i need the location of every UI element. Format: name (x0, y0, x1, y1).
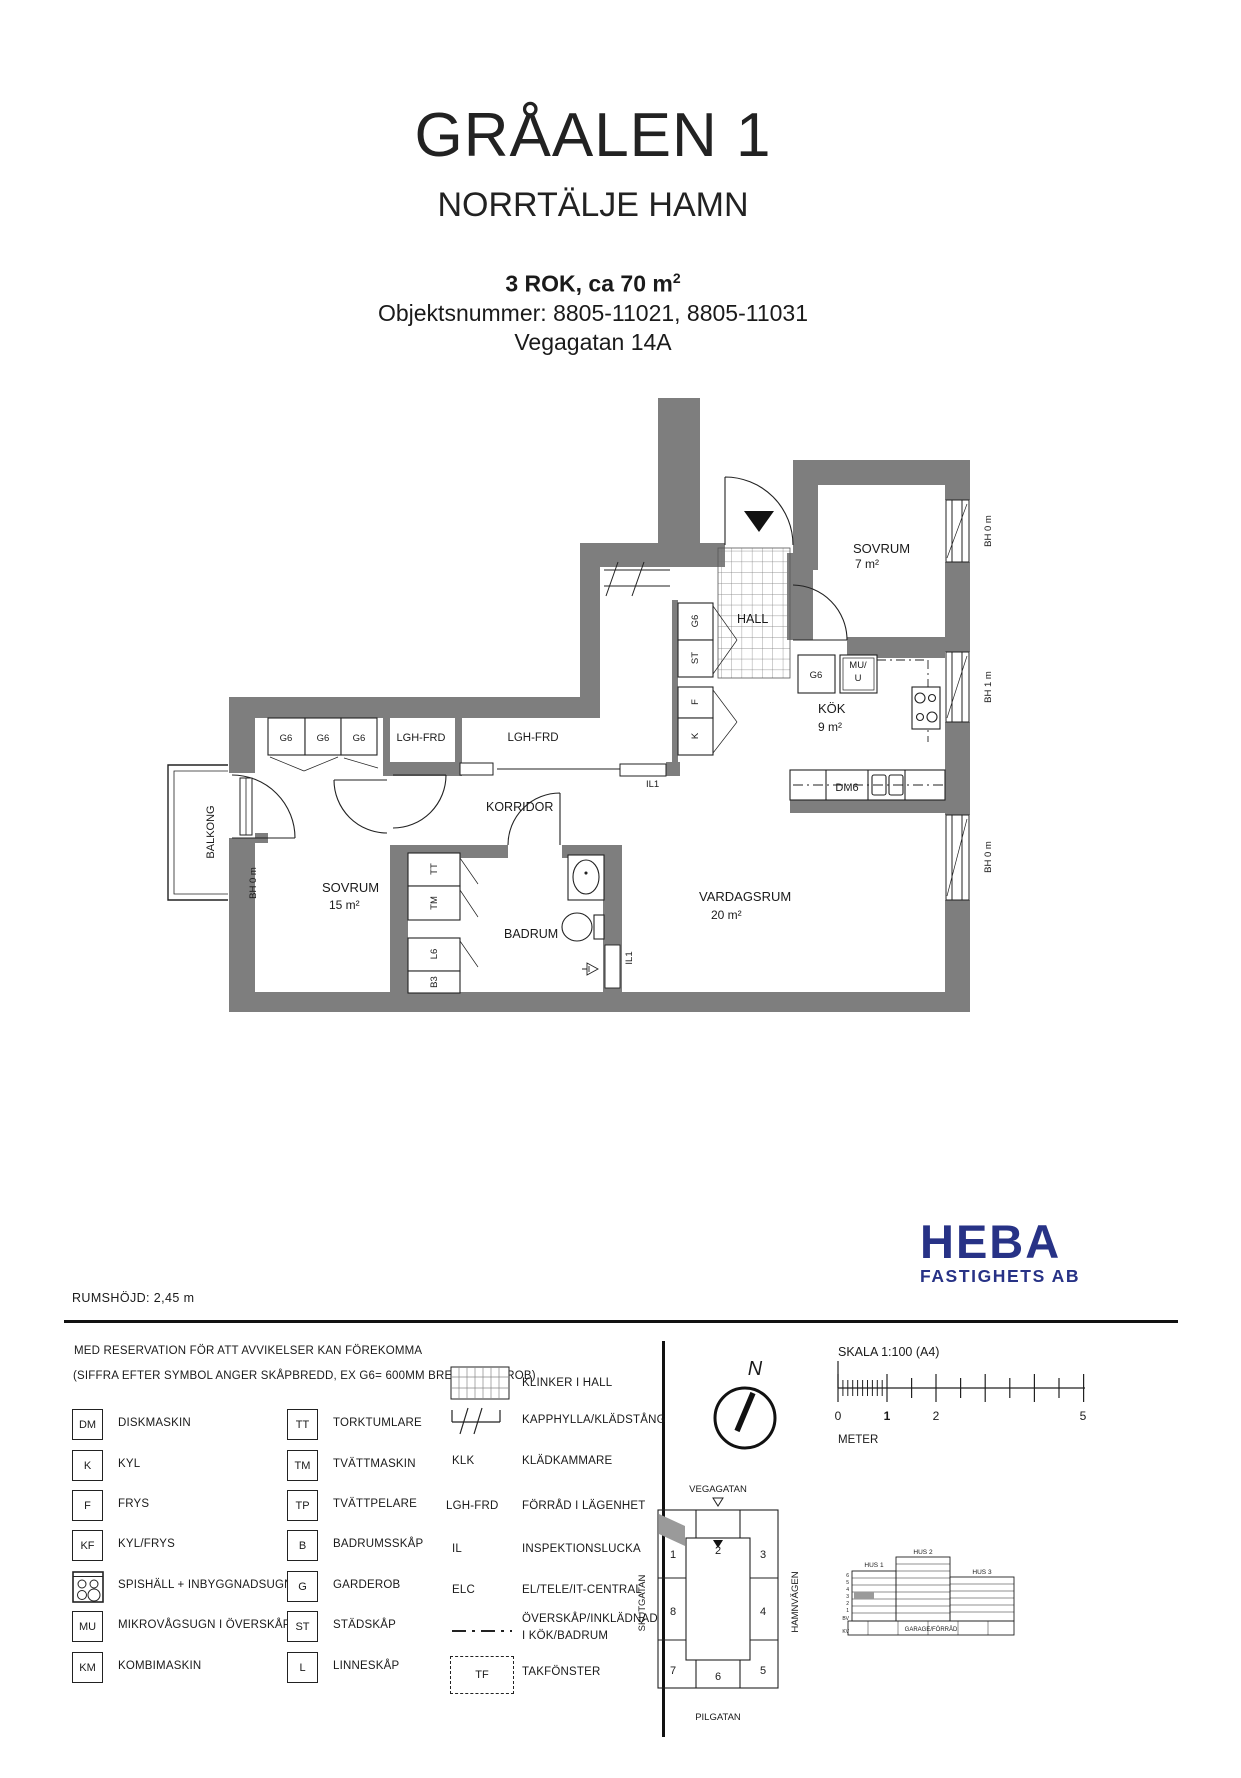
legend-tf-icon: TF (450, 1656, 514, 1694)
legend-symbol-f: F (72, 1490, 103, 1521)
legend-dashdot-icon (450, 1624, 514, 1638)
scale-unit-label: METER (838, 1434, 878, 1446)
badrum-fixtures (562, 855, 604, 975)
legend-label-stadskap: STÄDSKÅP (333, 1619, 396, 1631)
legend-symbol-k: K (72, 1450, 103, 1481)
legend-symbol-tm: TM (287, 1450, 318, 1481)
label-lghfrd-1: LGH-FRD (397, 732, 446, 744)
unit-number-2: 2 (715, 1545, 721, 1557)
legend-label-torktumlare: TORKTUMLARE (333, 1417, 422, 1429)
windows (946, 500, 969, 900)
scale-tick-0: 0 (835, 1409, 842, 1423)
street-label-pilgatan: PILGATAN (695, 1712, 741, 1723)
legend-symbol-b: B (287, 1530, 318, 1561)
svg-text:2: 2 (846, 1601, 849, 1607)
legend-label-tvattmaskin: TVÄTTMASKIN (333, 1458, 416, 1470)
legend-label-kombimaskin: KOMBIMASKIN (118, 1660, 201, 1672)
svg-text:KV: KV (842, 1629, 849, 1635)
area-label-sovrum15: 15 m² (329, 898, 360, 912)
room-label-balkong: BALKONG (205, 805, 217, 858)
label-il1-b: IL1 (624, 951, 635, 964)
label-bh0-right2: BH 0 m (983, 841, 994, 873)
floor-numbers: 6 5 4 3 2 1 BV KV (842, 1573, 849, 1635)
label-b3: B3 (429, 976, 440, 988)
inspection-hatch (620, 764, 666, 776)
window-sovrum7 (946, 500, 969, 562)
scale-bar: SKALA 1:100 (A4) 0 1 2 5 METER (830, 1340, 1102, 1455)
legend-kapphylla-icon (450, 1406, 502, 1436)
label-bh1: BH 1 m (983, 671, 994, 703)
label-f: F (690, 699, 701, 705)
area-label-vardagsrum: 20 m² (711, 908, 742, 922)
sqm-superscript: 2 (673, 270, 681, 286)
heba-logo: HEBA FASTIGHETS AB (920, 1218, 1080, 1286)
logo-text: HEBA (920, 1218, 1080, 1265)
svg-text:4: 4 (846, 1587, 849, 1593)
svg-text:5: 5 (846, 1580, 849, 1586)
legend-symbol-elc: ELC (452, 1584, 475, 1596)
logo-subtext: FASTIGHETS AB (920, 1268, 1080, 1286)
label-g6-1: G6 (280, 733, 293, 744)
legend-label-tvattpelare: TVÄTTPELARE (333, 1498, 417, 1510)
room-label-korridor: KORRIDOR (486, 800, 553, 814)
legend-symbol-il: IL (452, 1543, 462, 1555)
legend-klinker-icon (450, 1366, 510, 1400)
label-bh0-left: BH 0 m (248, 867, 259, 899)
legend-symbol-lghfrd: LGH-FRD (446, 1500, 499, 1512)
unit-number-4: 4 (760, 1606, 766, 1618)
street-label-skutgatan: SKUTGATAN (637, 1575, 648, 1632)
legend-symbol-tp: TP (287, 1490, 318, 1521)
label-l6: L6 (429, 949, 440, 960)
legend-label-inspektionslucka: INSPEKTIONSLUCKA (522, 1543, 641, 1555)
label-mu-2: U (855, 673, 862, 684)
legend-label-linneskap: LINNESKÅP (333, 1660, 399, 1672)
legend-label-diskmaskin: DISKMASKIN (118, 1417, 191, 1429)
entrance-arrow-icon (744, 511, 774, 532)
lghfrd-door-arc (393, 775, 446, 828)
svg-text:1: 1 (846, 1608, 849, 1614)
floorplan-drawing: SOVRUM 7 m² KÖK 9 m² HALL KORRIDOR BADRU… (160, 392, 1010, 1027)
kitchen-counter (790, 770, 945, 800)
room-label-vardagsrum: VARDAGSRUM (699, 889, 791, 904)
north-label: N (748, 1358, 763, 1380)
unit-number-3: 3 (760, 1549, 766, 1561)
room-label-sovrum15: SOVRUM (322, 880, 379, 895)
balcony-railing (168, 765, 228, 900)
unit-number-5: 5 (760, 1665, 766, 1677)
legend-label-eltele: EL/TELE/IT-CENTRAL (522, 1584, 642, 1596)
scale-label: SKALA 1:100 (A4) (838, 1345, 939, 1359)
legend-label-kapphylla: KAPPHYLLA/KLÄDSTÅNG (522, 1414, 666, 1426)
hus2-label: HUS 2 (913, 1549, 933, 1556)
unit-location-highlight (659, 1514, 685, 1546)
site-unit-numbers: 1 2 3 8 4 7 6 5 (670, 1545, 766, 1683)
legend-label-frys: FRYS (118, 1498, 149, 1510)
scale-tick-2: 2 (933, 1409, 940, 1423)
legend-symbol-kf: KF (72, 1530, 103, 1561)
document-page: GRÅALEN 1 NORRTÄLJE HAMN 3 ROK, ca 70 m2… (0, 0, 1241, 1778)
site-map: VEGAGATAN 1 2 3 8 4 7 6 5 SKUTGATAN HAMN… (628, 1478, 808, 1728)
garage-label: GARAGE/FÖRRÅD (905, 1626, 958, 1633)
label-mu-1: MU/ (849, 660, 867, 671)
sovrum15-wardrobes (268, 718, 378, 771)
page-subtitle: NORRTÄLJE HAMN (0, 186, 1186, 225)
room-height-note: RUMSHÖJD: 2,45 m (72, 1291, 194, 1305)
legend-symbol-km: KM (72, 1652, 103, 1683)
label-k: K (690, 732, 701, 739)
stove-icon (912, 687, 940, 729)
legend-label-takfonster: TAKFÖNSTER (522, 1666, 600, 1678)
legend-label-kyl: KYL (118, 1458, 140, 1470)
window-kok (946, 652, 969, 722)
page-title: GRÅALEN 1 (0, 100, 1186, 171)
toilet-icon (562, 913, 604, 941)
legend-note-1: MED RESERVATION FÖR ATT AVVIKELSER KAN F… (74, 1345, 422, 1357)
label-g6-2: G6 (317, 733, 330, 744)
hus3-label: HUS 3 (972, 1569, 992, 1576)
label-il1-a: IL1 (646, 779, 659, 790)
scale-tick-5: 5 (1080, 1409, 1087, 1423)
kapphylla-icon (604, 562, 670, 596)
legend-stove-icon (72, 1571, 104, 1603)
unit-number-1: 1 (670, 1549, 676, 1561)
label-st: ST (690, 652, 701, 664)
room-label-sovrum7: SOVRUM (853, 541, 910, 556)
room-label-badrum: BADRUM (504, 927, 558, 941)
hus1-label: HUS 1 (864, 1562, 884, 1569)
label-g6-3: G6 (353, 733, 366, 744)
sovrum15-door-arc (334, 780, 387, 833)
apartment-size-line: 3 ROK, ca 70 m2 (0, 270, 1186, 298)
label-tm: TM (429, 896, 440, 910)
svg-text:6: 6 (846, 1573, 849, 1579)
street-marker-icon (713, 1498, 723, 1506)
legend-label-forrad: FÖRRÅD I LÄGENHET (522, 1500, 646, 1512)
badrum-cabinets (408, 853, 478, 993)
label-lghfrd-2: LGH-FRD (507, 732, 558, 744)
unit-number-8: 8 (670, 1606, 676, 1618)
room-label-kok: KÖK (818, 701, 846, 716)
elevation-unit-highlight (854, 1592, 874, 1599)
address-line: Vegagatan 14A (0, 329, 1186, 356)
legend-label-garderob: GARDEROB (333, 1579, 400, 1591)
compass-icon: N (700, 1350, 795, 1465)
label-dm6: DM6 (835, 782, 858, 794)
area-label-sovrum7: 7 m² (855, 557, 879, 571)
lghfrd2-door (460, 763, 493, 775)
unit-number-6: 6 (715, 1671, 721, 1683)
unit-number-7: 7 (670, 1665, 676, 1677)
label-g6-hall: G6 (690, 615, 701, 628)
legend-symbol-dm: DM (72, 1409, 103, 1440)
washbasin-icon (568, 855, 604, 900)
area-label-kok: 9 m² (818, 720, 842, 734)
legend-symbol-l: L (287, 1652, 318, 1683)
legend-label-mikro: MIKROVÅGSUGN I ÖVERSKÅP (118, 1619, 291, 1631)
legend-symbol-st: ST (287, 1611, 318, 1642)
legend-label-spishall: SPISHÄLL + INBYGGNADSUGN (118, 1579, 293, 1591)
inspection-shaft (605, 945, 620, 988)
legend-symbol-tt: TT (287, 1409, 318, 1440)
legend-symbol-mu: MU (72, 1611, 103, 1642)
legend-label-kladkammare: KLÄDKAMMARE (522, 1455, 612, 1467)
floor-drain-icon (582, 963, 598, 975)
legend-label-badrumsskap: BADRUMSSKÅP (333, 1538, 423, 1550)
label-g6-kok: G6 (810, 670, 823, 681)
street-label-vegagatan: VEGAGATAN (689, 1484, 747, 1495)
scale-tick-1: 1 (884, 1409, 891, 1423)
legend-label-klinker: KLINKER I HALL (522, 1377, 612, 1389)
legend-symbol-g: G (287, 1571, 318, 1602)
legend-label-kylfrys: KYL/FRYS (118, 1538, 175, 1550)
horizontal-rule (64, 1320, 1178, 1323)
window-vardagsrum (946, 815, 969, 900)
room-label-hall: HALL (737, 612, 768, 626)
elevation-diagram: HUS 1 HUS 2 HUS 3 6 5 4 3 2 1 BV KV GARA… (838, 1543, 1028, 1661)
object-number-line: Objektsnummer: 8805-11021, 8805-11031 (0, 300, 1186, 327)
legend-label-overskap-2: I KÖK/BADRUM (522, 1630, 608, 1642)
label-tt: TT (429, 863, 440, 875)
legend-symbol-klk: KLK (452, 1455, 474, 1467)
label-bh0-right1: BH 0 m (983, 515, 994, 547)
street-label-hamnvagen: HAMNVÄGEN (790, 1571, 801, 1632)
svg-text:3: 3 (846, 1594, 849, 1600)
